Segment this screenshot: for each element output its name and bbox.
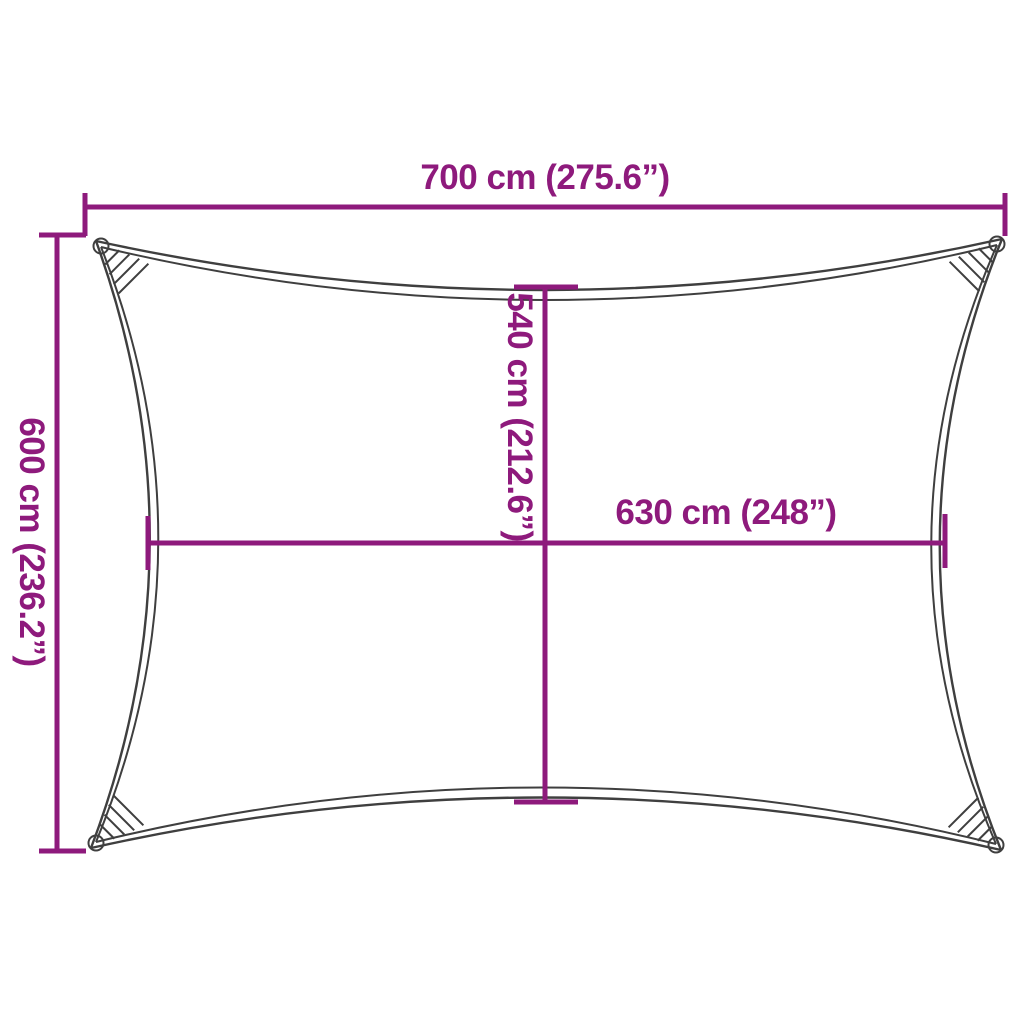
label-inner-width: 630 cm (248”) [615, 493, 836, 533]
label-inner-height: 540 cm (212.6”) [499, 292, 539, 541]
sail-edge-right-outer [940, 239, 1002, 850]
diagram-canvas: 700 cm (275.6”) 600 cm (236.2”) 540 cm (… [0, 0, 1024, 1024]
sail-edge-top-outer [96, 239, 1002, 290]
corner-grommet-bottom-right [949, 798, 1017, 866]
label-width-top: 700 cm (275.6”) [420, 158, 669, 198]
sail-edge-top-inner [101, 245, 997, 300]
corner-grommet-top-left [81, 226, 149, 294]
sail-edge-bottom-outer [91, 797, 1001, 850]
label-height-left: 600 cm (236.2”) [11, 417, 51, 666]
sail-edge-left-outer [91, 241, 150, 848]
